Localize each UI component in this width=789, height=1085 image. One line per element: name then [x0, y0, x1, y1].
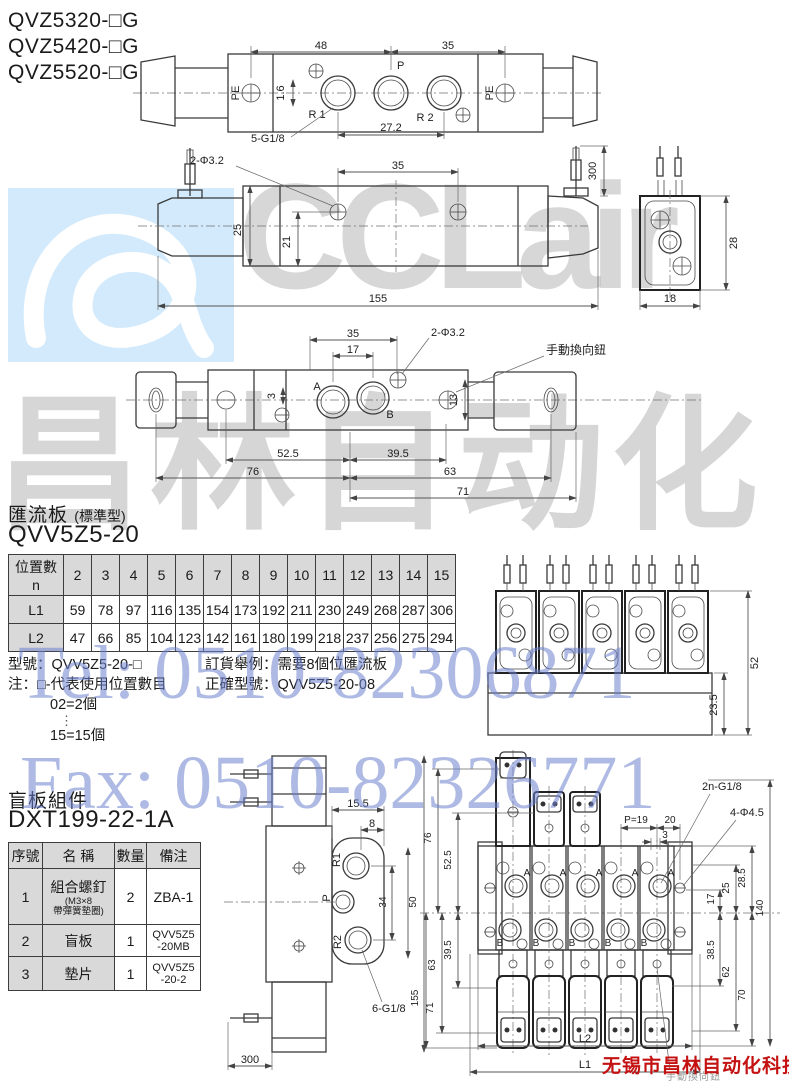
- l1-value: 192: [260, 596, 288, 624]
- l2-value: 294: [428, 624, 456, 652]
- manifold-front-dimensions: 52 23.5: [708, 591, 761, 735]
- pos-header: 8: [232, 555, 260, 596]
- col-header: 數量: [115, 843, 147, 869]
- manifold-top-outline: [420, 750, 780, 1055]
- l1-value: 306: [428, 596, 456, 624]
- l1-row: L1 59 78 97 116 135 154 173 192 211 230 …: [9, 596, 456, 624]
- dim-label: 28.5: [737, 868, 748, 888]
- dim-label: 3: [662, 830, 668, 841]
- row-label: L1: [9, 596, 64, 624]
- l2-value: 142: [204, 624, 232, 652]
- dim-label: L1: [579, 1059, 591, 1071]
- part-qty: 2: [115, 869, 147, 925]
- port-label: B: [641, 938, 648, 949]
- l2-value: 180: [260, 624, 288, 652]
- dim-label: 63: [444, 466, 456, 478]
- bottom-view-dimensions: A B 35 17 2-Φ3.2 手動換向鈕 3 13 52.5 39.5 76: [156, 327, 606, 502]
- port-label: A: [632, 868, 639, 879]
- col-header: 名 稱: [43, 843, 115, 869]
- dim-label: 23.5: [708, 694, 720, 715]
- pos-header: 6: [176, 555, 204, 596]
- l1-value: 230: [316, 596, 344, 624]
- dim-label: 35: [347, 328, 359, 340]
- valve-bottom-outline: [126, 370, 704, 430]
- corner-top: 位置數: [9, 557, 63, 577]
- part-name: 盲板: [43, 925, 115, 957]
- l2-row: L2 47 66 85 104 123 142 161 180 199 218 …: [9, 624, 456, 652]
- l2-value: 199: [288, 624, 316, 652]
- l1-value: 211: [288, 596, 316, 624]
- l2-value: 104: [148, 624, 176, 652]
- part-no: 1: [9, 869, 43, 925]
- part-note: QVV5Z5 -20-2: [147, 957, 201, 991]
- pos-header: 7: [204, 555, 232, 596]
- manifold-top-drawing: A A A A A B B B B B 76 52.5 39.5 63 71: [418, 750, 789, 1085]
- port-label: P: [321, 894, 333, 901]
- row-label: L2: [9, 624, 64, 652]
- dim-label: 39.5: [443, 940, 454, 960]
- dim-label: 52: [749, 657, 761, 669]
- parts-row: 3 墊片 1 QVV5Z5 -20-2: [9, 957, 201, 991]
- port-label: B: [605, 938, 612, 949]
- model-list: QVZ5320-□G QVZ5420-□G QVZ5520-□G: [8, 8, 139, 86]
- model-name: QVZ5320-□G: [8, 8, 139, 34]
- note-line: 注：□-代表使用位置數目: [8, 675, 167, 695]
- pos-header: 4: [120, 555, 148, 596]
- blank-plate-side-drawing: R1 P R2 15.5 8 34 50 155 6-G1/8 300: [224, 750, 430, 1085]
- manifold-dimension-table: 位置數 n 2 3 4 5 6 7 8 9 10 11 12 13 14 15 …: [8, 554, 456, 652]
- part-note-line: -20-2: [147, 974, 200, 986]
- pos-header: 13: [372, 555, 400, 596]
- port-label: PE: [230, 86, 242, 101]
- dim-label: 20: [664, 815, 676, 826]
- dim-label: 39.5: [387, 448, 408, 460]
- dim-label: 17: [706, 893, 717, 905]
- dim-label: 76: [423, 832, 434, 844]
- parts-row: 1 組合螺釘 (M3×8 帶彈簧墊圈) 2 ZBA-1: [9, 869, 201, 925]
- dim-label: 28: [728, 237, 740, 249]
- port-label: B: [386, 409, 393, 421]
- dim-label: 3: [266, 393, 278, 399]
- col-header: 備注: [147, 843, 201, 869]
- pos-header: 3: [92, 555, 120, 596]
- port-label: B: [569, 938, 576, 949]
- dim-label: 35: [392, 160, 404, 172]
- dim-label: 63: [427, 959, 438, 971]
- blank-plate-model: DXT199-22-1A: [8, 806, 174, 834]
- dim-label: 48: [315, 40, 327, 52]
- valve-end-outline: [640, 146, 700, 298]
- dim-label: L2: [579, 1033, 591, 1045]
- part-note: QVV5Z5 -20MB: [147, 925, 201, 957]
- dim-label: 155: [369, 293, 387, 305]
- l1-value: 59: [64, 596, 92, 624]
- side-view-drawing: 2-Φ3.2 35 25 21 155 300: [128, 138, 610, 320]
- dim-label: 8: [369, 818, 375, 830]
- l2-value: 85: [120, 624, 148, 652]
- part-name: 墊片: [43, 957, 115, 991]
- l2-value: 66: [92, 624, 120, 652]
- model-name: QVZ5520-□G: [8, 60, 139, 86]
- datasheet-page: CCLair 昌林自动化 QVZ5320-□G QVZ5420-□G QVZ55…: [0, 0, 789, 1085]
- port-label: A: [560, 868, 567, 879]
- table-header-row: 位置數 n 2 3 4 5 6 7 8 9 10 11 12 13 14 15: [9, 555, 456, 596]
- l2-value: 47: [64, 624, 92, 652]
- l2-value: 256: [372, 624, 400, 652]
- port-label: R2: [332, 935, 344, 949]
- top-view-dimensions: 48 35 1.6 PE PE P R 1 R 2 5-G1/8 27.2: [230, 40, 505, 145]
- bottom-view-drawing: A B 35 17 2-Φ3.2 手動換向鈕 3 13 52.5 39.5 76: [126, 320, 704, 506]
- note-line: 15=15個: [50, 726, 167, 746]
- dim-label: 21: [281, 236, 293, 248]
- pos-header: 10: [288, 555, 316, 596]
- dim-label: 140: [755, 899, 766, 916]
- l1-value: 287: [400, 596, 428, 624]
- model-name: QVZ5420-□G: [8, 34, 139, 60]
- dim-label: 300: [587, 162, 599, 180]
- dim-label: 300: [241, 1054, 259, 1066]
- corner-bottom: n: [9, 577, 63, 593]
- port-label: R1: [331, 853, 343, 867]
- manual-override-note: 手動換向鈕: [546, 342, 606, 357]
- port-label: PE: [484, 86, 496, 101]
- part-no: 3: [9, 957, 43, 991]
- manifold-top-dimensions: A A A A A B B B B B 76 52.5 39.5 63 71: [422, 769, 774, 1083]
- thread-note: 2n-G1/8: [702, 781, 742, 793]
- blank-plate-parts-table: 序號 名 稱 數量 備注 1 組合螺釘 (M3×8 帶彈簧墊圈) 2 ZBA-1…: [8, 842, 201, 991]
- part-name-main: 組合螺釘: [43, 877, 114, 897]
- corner-cell: 位置數 n: [9, 555, 64, 596]
- dim-label: 25: [721, 882, 732, 894]
- manifold-front-drawing: 52 23.5: [476, 553, 786, 749]
- pos-header: 5: [148, 555, 176, 596]
- part-qty: 1: [115, 925, 147, 957]
- l1-value: 135: [176, 596, 204, 624]
- note-line: 02=2個: [50, 695, 167, 715]
- dim-label: 17: [347, 344, 359, 356]
- dim-label: 71: [425, 1002, 436, 1014]
- part-name-sub: 帶彈簧墊圈): [43, 907, 114, 917]
- dim-label: 76: [247, 466, 259, 478]
- order-example: 訂貨舉例：需要8個位匯流板: [205, 655, 387, 675]
- parts-row: 2 盲板 1 QVV5Z5 -20MB: [9, 925, 201, 957]
- pos-header: 2: [64, 555, 92, 596]
- l2-value: 161: [232, 624, 260, 652]
- dim-label: 35: [442, 40, 454, 52]
- end-view-drawing: 28 18: [612, 142, 762, 320]
- pos-header: 14: [400, 555, 428, 596]
- port-label: P: [397, 60, 404, 72]
- dim-label: 18: [664, 293, 676, 305]
- company-name: 无锡市昌林自动化科技: [602, 1051, 789, 1078]
- l1-value: 268: [372, 596, 400, 624]
- pos-header: 11: [316, 555, 344, 596]
- l1-value: 249: [344, 596, 372, 624]
- dim-label: 62: [721, 966, 732, 978]
- ordering-notes-left: 型號：QVV5Z5-20-□ 注：□-代表使用位置數目 02=2個 ⋮ 15=1…: [8, 655, 167, 746]
- l1-value: 154: [204, 596, 232, 624]
- port-label: A: [313, 381, 321, 393]
- dim-label: P=19: [624, 815, 648, 826]
- dim-label: 71: [457, 486, 469, 498]
- l2-value: 123: [176, 624, 204, 652]
- l1-value: 116: [148, 596, 176, 624]
- l1-value: 173: [232, 596, 260, 624]
- part-note-line: QVV5Z5: [147, 962, 200, 974]
- part-note: ZBA-1: [147, 869, 201, 925]
- dim-label: 52.5: [443, 850, 454, 870]
- port-label: B: [497, 938, 504, 949]
- ellipsis: ⋮: [60, 715, 167, 726]
- part-name-sub: (M3×8: [43, 897, 114, 907]
- l2-value: 218: [316, 624, 344, 652]
- dim-label: 38.5: [706, 940, 717, 960]
- col-header: 序號: [9, 843, 43, 869]
- valve-top-outline: [133, 54, 603, 132]
- dim-label: 1.6: [275, 85, 287, 100]
- parts-header-row: 序號 名 稱 數量 備注: [9, 843, 201, 869]
- end-view-dimensions: 28 18: [640, 196, 740, 310]
- dim-label: 34: [378, 896, 389, 908]
- note-model: 型號：QVV5Z5-20-□: [8, 655, 167, 675]
- pos-header: 12: [344, 555, 372, 596]
- l1-value: 97: [120, 596, 148, 624]
- dim-label: 27.2: [380, 122, 401, 134]
- part-no: 2: [9, 925, 43, 957]
- dim-label: 25: [232, 224, 244, 236]
- solenoid-end: [497, 950, 529, 1048]
- port-label: A: [596, 868, 603, 879]
- manifold-front-outline: [488, 555, 712, 735]
- part-name: 組合螺釘 (M3×8 帶彈簧墊圈): [43, 869, 115, 925]
- port-label: B: [533, 938, 540, 949]
- order-model: 正確型號：QVV5Z5-20-08: [205, 675, 387, 695]
- manifold-model: QVV5Z5-20: [8, 521, 139, 549]
- part-qty: 1: [115, 957, 147, 991]
- pos-header: 9: [260, 555, 288, 596]
- dim-label: 52.5: [277, 448, 298, 460]
- hole-note: 2-Φ3.2: [190, 155, 224, 167]
- top-view-drawing: 48 35 1.6 PE PE P R 1 R 2 5-G1/8 27.2: [133, 38, 603, 146]
- side-view-dimensions: 2-Φ3.2 35 25 21 155 300: [158, 146, 608, 310]
- dim-label: 70: [737, 989, 748, 1001]
- hole-note: 2-Φ3.2: [431, 327, 465, 339]
- part-note-line: -20MB: [147, 941, 200, 953]
- ordering-notes-right: 訂貨舉例：需要8個位匯流板 正確型號：QVV5Z5-20-08: [205, 655, 387, 695]
- hole-note: 4-Φ4.5: [730, 807, 764, 819]
- l2-value: 237: [344, 624, 372, 652]
- pos-header: 15: [428, 555, 456, 596]
- port-label: A: [524, 868, 531, 879]
- dim-label: 13: [448, 394, 460, 406]
- port-label: R 2: [416, 112, 433, 124]
- part-note-line: QVV5Z5: [147, 929, 200, 941]
- dim-label: 15.5: [347, 798, 368, 810]
- l1-value: 78: [92, 596, 120, 624]
- l2-value: 275: [400, 624, 428, 652]
- thread-note: 6-G1/8: [372, 1003, 406, 1015]
